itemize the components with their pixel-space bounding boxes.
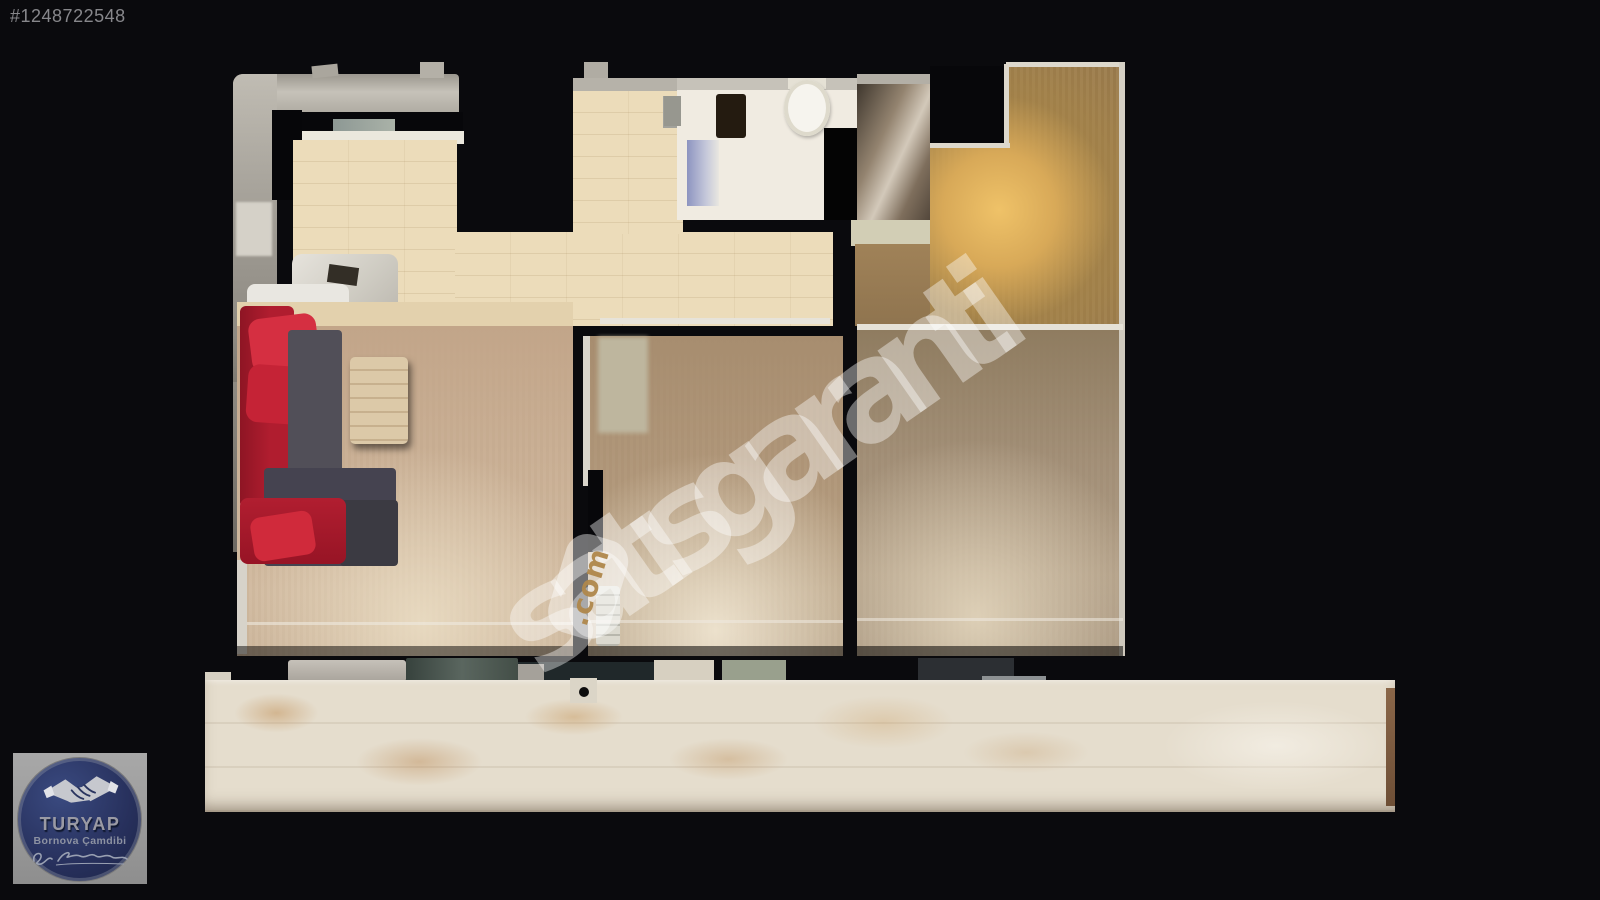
entry-nook-floor <box>855 244 933 326</box>
balcony-box-dot <box>579 687 589 697</box>
living-bottom-shadow <box>237 646 573 656</box>
bedroom2-notch-line-h <box>930 143 1010 148</box>
sofa-seat-horizontal-2 <box>340 500 398 566</box>
bedroom1-corner-patch <box>598 337 648 433</box>
living-sill-line <box>247 622 573 625</box>
small-room-bump <box>584 62 608 78</box>
living-left-sliver <box>237 560 247 654</box>
wall-bump-2 <box>420 62 444 78</box>
bedroom2-bottom-shadow <box>857 646 1123 656</box>
bedroom2-lower-floor <box>857 330 1123 656</box>
bedroom2-sill-line <box>857 618 1123 621</box>
bath-shadow <box>824 128 859 220</box>
bedroom1-door-gap <box>588 470 603 552</box>
sofa-seat-vertical <box>288 330 342 480</box>
logo-brand: TURYAP <box>13 814 147 835</box>
radiator <box>596 586 620 646</box>
bath-cabinet <box>716 94 746 138</box>
bedroom1-window-sill <box>654 660 714 681</box>
handshake-icon <box>42 770 120 820</box>
bedroom1-left-sliver <box>583 336 590 486</box>
bedroom2-right-line <box>1119 62 1125 330</box>
washing-machine <box>664 96 681 126</box>
listing-photo-stage: #1248722548 <box>0 0 1600 900</box>
living-window-sill <box>288 660 406 682</box>
bedroom2-notch-line-v <box>1004 64 1009 148</box>
left-wall-patch <box>236 202 272 256</box>
mirror-wall <box>857 74 933 224</box>
bedroom2-notch <box>930 66 1006 146</box>
shower-glass <box>687 140 719 206</box>
logo-branch: Bornova Çamdibi <box>13 835 147 847</box>
window-sill-green <box>851 220 931 246</box>
bedroom2-right-line2 <box>1119 330 1125 656</box>
bedroom1-window-green <box>722 660 786 681</box>
bedroom2-top-line <box>1006 62 1124 67</box>
floor-plan <box>0 0 1600 900</box>
balcony-right-edge <box>1386 688 1395 806</box>
bedroom1-bottom-shadow <box>588 646 843 656</box>
bedroom1-top-line <box>600 318 830 324</box>
logo-signature <box>28 847 132 869</box>
balcony-floor <box>205 680 1395 812</box>
bedroom1-sill-line <box>588 620 843 623</box>
coffee-table <box>350 357 408 444</box>
